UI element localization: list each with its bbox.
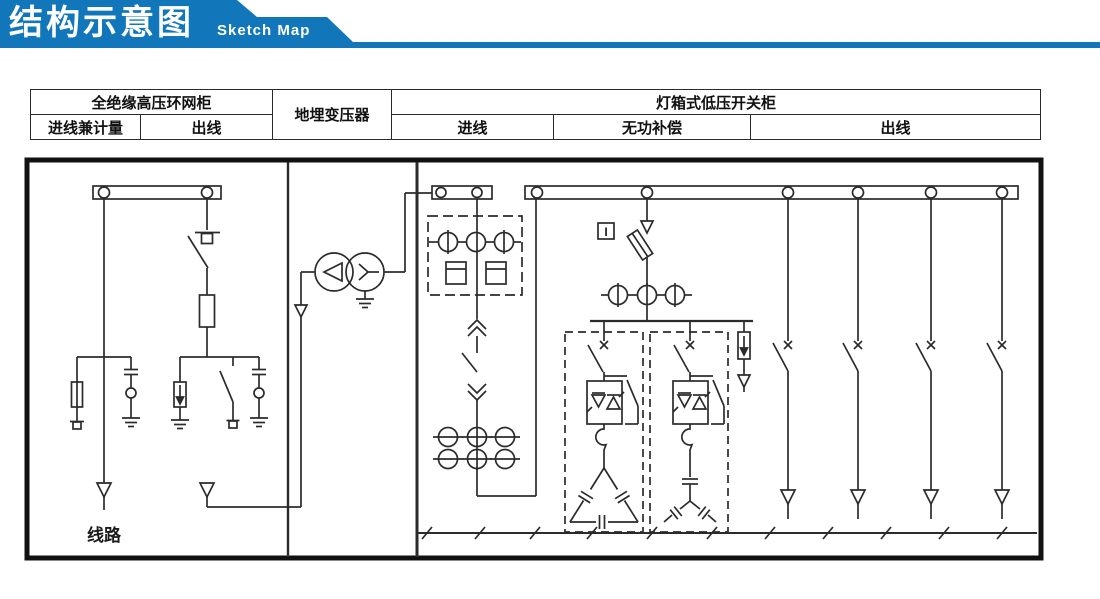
energy-meter-icon [486,262,506,284]
hv-incoming-feeder [70,200,140,511]
hv-fuse-icon [200,295,215,327]
bypass-contactor-icon [604,376,638,424]
ammeter-label: I [604,225,607,239]
compensation-feeder [590,200,753,322]
metering-current-transformers-icon [428,216,522,295]
compensation-current-transformers-icon [601,283,692,307]
thyristor-module-icon [587,381,624,424]
diagram-frame [27,160,1041,558]
transformer-lv-lead [384,193,432,272]
page: 结构示意图 Sketch Map 全绝缘高压环网柜 地埋变压器 灯箱式低压开关柜… [0,0,1100,599]
outgoing-feeder-4 [987,200,1009,520]
thyristor-module-icon [673,381,710,424]
earthing-switch-icon [220,357,240,428]
fuse-disconnector-icon [627,230,652,260]
withdrawable-circuit-breaker-icon [462,320,486,400]
single-line-diagram: 线路 I [0,0,1100,599]
lv-incoming-busbar [432,186,492,199]
line-arrow-icon [97,483,111,510]
bypass-contactor-icon [690,376,724,424]
lv-main-busbar [525,186,1018,199]
surge-arrester-icon [171,357,189,429]
outgoing-feeder-1 [773,200,795,520]
series-reactor-icon [682,424,692,477]
breaker-contact-icon [588,341,608,372]
voltage-transformer-fuse-icon [70,357,84,429]
thyristor-switched-capacitor-delta [565,321,643,532]
capacitive-voltage-indicator-icon [122,357,140,427]
transformer-delta-wye-icon [315,253,384,308]
outgoing-feeder-3 [916,200,938,520]
delta-capacitor-icon [570,468,638,529]
energy-meter-icon [446,262,466,284]
hv-outgoing-feeder [171,200,301,508]
transformer-feeder [295,272,315,507]
wye-capacitor-icon [664,479,716,522]
hv-busbar [93,186,221,199]
breaker-contact-icon [674,341,694,372]
load-break-switch-icon [188,233,220,269]
lv-surge-arrester-icon [738,321,750,392]
line-label: 线路 [87,525,122,545]
line-arrow-icon [200,483,214,507]
thyristor-switched-capacitor-wye [650,321,728,532]
series-reactor-icon [596,424,606,468]
capacitive-voltage-indicator-icon [250,357,268,427]
outgoing-feeder-2 [843,200,865,520]
flow-arrow-icon [295,305,307,317]
flow-arrow-icon [641,221,653,233]
